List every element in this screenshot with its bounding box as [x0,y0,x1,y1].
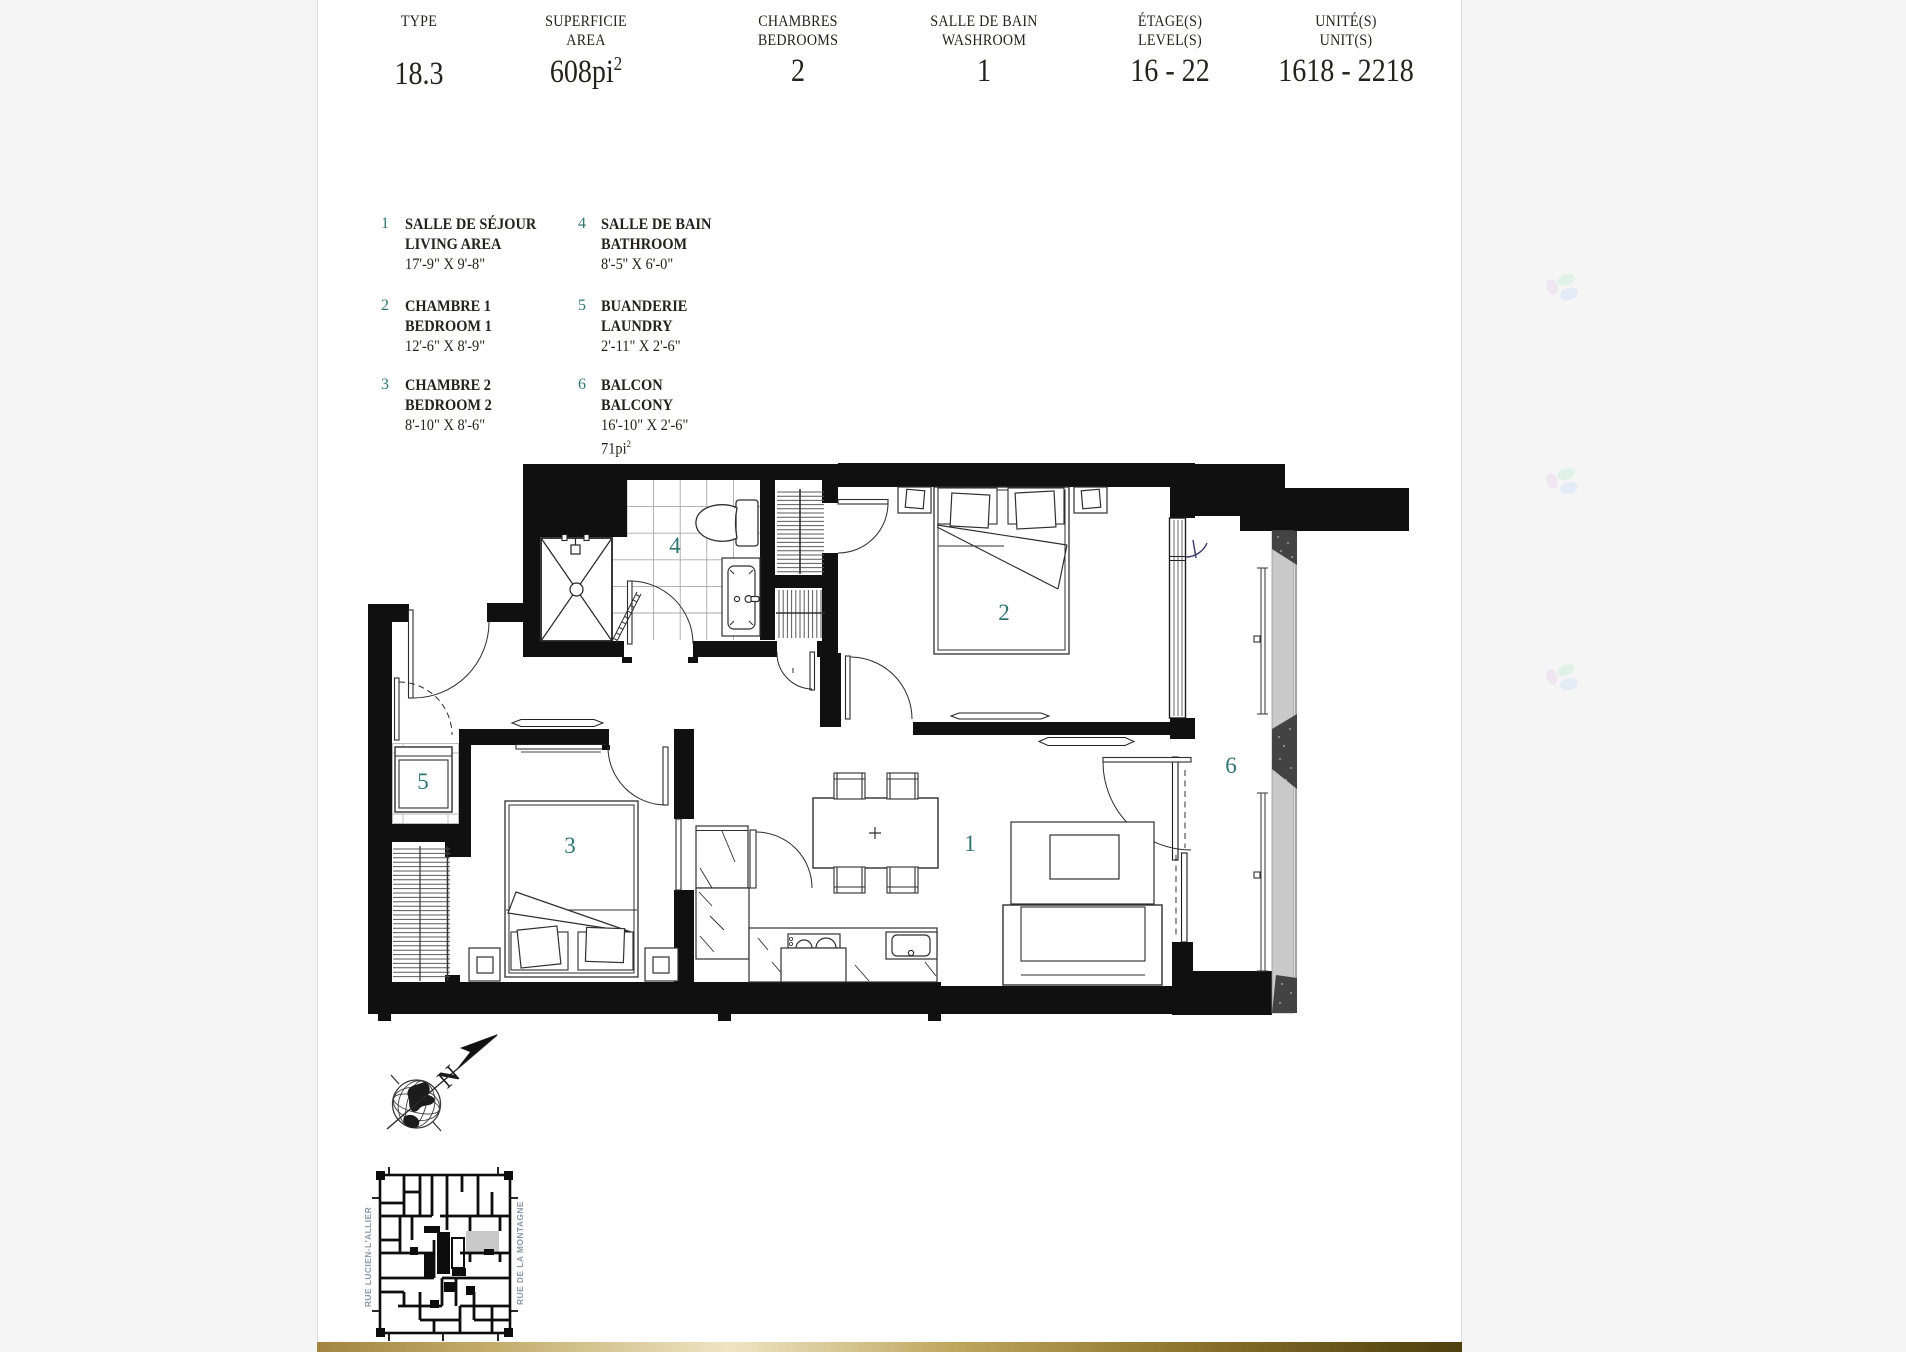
svg-text:3: 3 [564,833,576,858]
svg-text:RUE LUCIEN-L'ALLIER: RUE LUCIEN-L'ALLIER [363,1207,373,1307]
svg-text:RUE DE LA MONTAGNE: RUE DE LA MONTAGNE [515,1201,525,1305]
svg-text:4: 4 [669,533,681,558]
svg-text:5: 5 [417,769,429,794]
svg-text:2: 2 [998,600,1010,625]
svg-text:1: 1 [964,831,976,856]
svg-text:6: 6 [1225,753,1237,778]
